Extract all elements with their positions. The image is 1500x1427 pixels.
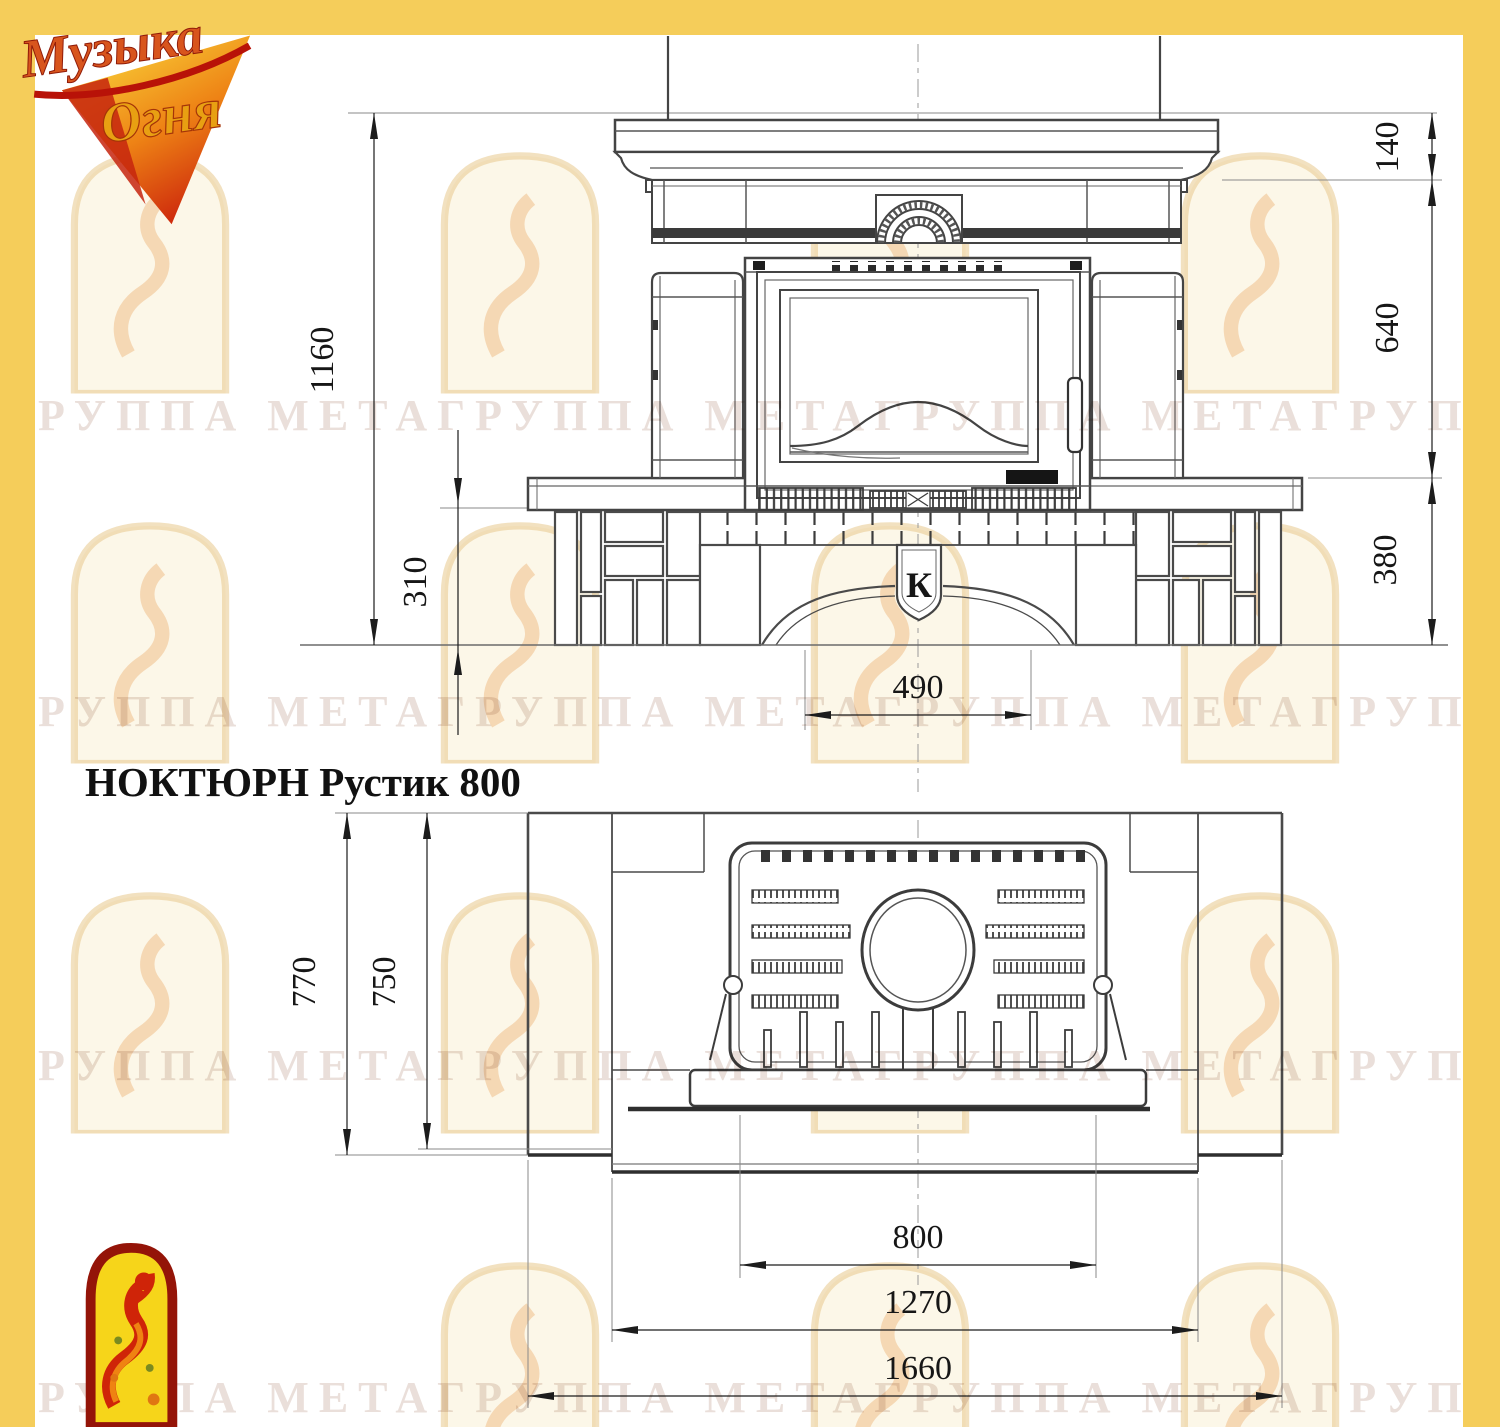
dim-body-width: 1270 xyxy=(884,1284,952,1321)
model-title: НОКТЮРН Рустик 800 xyxy=(85,758,521,806)
vent-grille-left xyxy=(759,488,863,510)
door-handle xyxy=(1068,378,1082,452)
firebox-front xyxy=(745,258,1090,510)
frieze-dark-band-left xyxy=(652,228,876,238)
chimney xyxy=(668,36,1160,120)
dim-cornice-height: 140 xyxy=(1369,122,1406,173)
maker-shield: К xyxy=(897,545,941,620)
fan-ornament xyxy=(876,195,962,243)
column-left xyxy=(652,273,743,478)
dim-depth-body: 750 xyxy=(366,957,403,1008)
stove-top-vents xyxy=(828,261,1008,271)
door-glass xyxy=(780,290,1038,462)
flue-circle xyxy=(862,890,974,1010)
front-view: К 1160 310 140 640 380 490 xyxy=(300,36,1448,792)
frieze-dark-band-right xyxy=(962,228,1181,238)
dim-hearth-height: 310 xyxy=(397,557,434,608)
maker-mark-letter: К xyxy=(906,565,932,605)
page: К 1160 310 140 640 380 490 xyxy=(0,0,1500,1427)
firebox-plan-top-ticks xyxy=(752,848,1086,864)
right-border-band xyxy=(1463,0,1500,1427)
dim-firebox-width: 800 xyxy=(893,1219,944,1256)
vent-grille-right xyxy=(972,488,1076,510)
dim-depth-total: 770 xyxy=(286,957,323,1008)
dim-base-height: 380 xyxy=(1367,535,1404,586)
dim-firebox-zone-height: 640 xyxy=(1369,303,1406,354)
latch-block xyxy=(1006,470,1058,484)
column-right xyxy=(1092,273,1183,478)
plan-view: 770 750 800 1270 1660 xyxy=(286,813,1282,1408)
latch-right xyxy=(1094,976,1112,994)
flame-emblem xyxy=(84,1240,179,1427)
base-tile-row xyxy=(700,512,1136,545)
frieze xyxy=(652,180,1181,243)
dim-opening-width: 490 xyxy=(893,669,944,706)
firebox-base-plate xyxy=(690,1070,1146,1106)
firebox-plan xyxy=(628,843,1150,1109)
dim-total-width: 1660 xyxy=(884,1350,952,1387)
latch-left xyxy=(724,976,742,994)
dim-total-height: 1160 xyxy=(304,327,341,394)
brand-logo: Музыка Огня xyxy=(6,0,274,245)
